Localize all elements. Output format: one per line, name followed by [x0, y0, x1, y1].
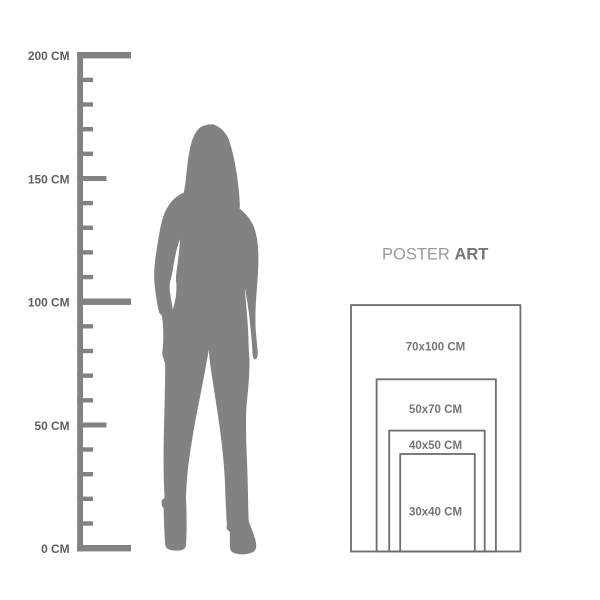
svg-text:POSTER ART: POSTER ART — [382, 245, 488, 263]
svg-text:200 CM: 200 CM — [28, 49, 70, 63]
svg-text:50x70 CM: 50x70 CM — [409, 404, 462, 416]
svg-text:100 CM: 100 CM — [28, 296, 70, 310]
svg-text:0 CM: 0 CM — [41, 542, 70, 556]
svg-text:150 CM: 150 CM — [28, 173, 70, 187]
svg-text:40x50 CM: 40x50 CM — [409, 440, 462, 452]
svg-text:70x100 CM: 70x100 CM — [406, 341, 465, 353]
svg-text:30x40 CM: 30x40 CM — [409, 506, 462, 518]
svg-text:50 CM: 50 CM — [34, 419, 69, 433]
